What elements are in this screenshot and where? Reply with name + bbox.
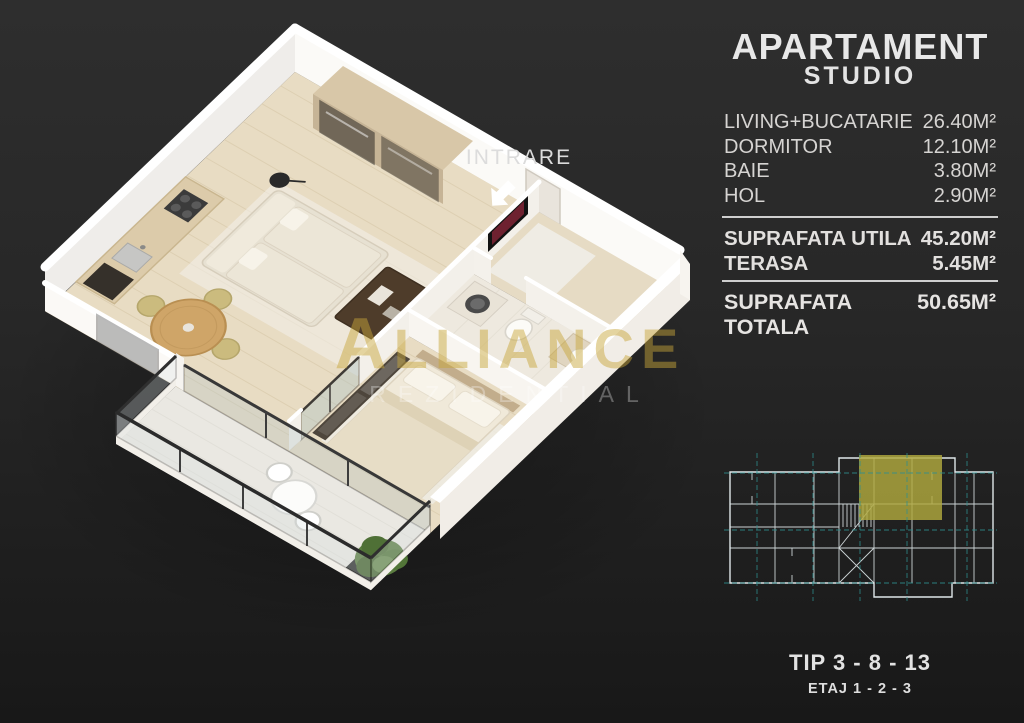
total-value: 50.65M² [917,290,996,340]
room-area-row: DORMITOR 12.10M² [724,135,996,160]
summary-label: TERASA [724,251,808,276]
room-value: 12.10M² [923,135,996,160]
room-value: 2.90M² [934,184,996,209]
summary-value: 45.20M² [921,226,996,251]
floor-location-blueprint [722,452,999,602]
unit-type-block: TIP 3 - 8 - 13 ETAJ 1 - 2 - 3 [722,650,998,697]
room-label: BAIE [724,159,770,184]
panel-divider [722,280,998,282]
room-label: DORMITOR [724,135,833,160]
summary-value: 5.45M² [932,251,996,276]
room-area-row: HOL 2.90M² [724,184,996,209]
room-area-row: LIVING+BUCATARIE 26.40M² [724,110,996,135]
total-label: SUPRAFATA TOTALA [724,290,917,340]
entrance-arrow-icon [488,176,522,210]
summary-label: SUPRAFATA UTILA [724,226,912,251]
total-row: SUPRAFATA TOTALA 50.65M² [724,290,996,340]
unit-floor-label: ETAJ 1 - 2 - 3 [722,681,998,697]
entrance-label: INTRARE [452,146,586,170]
summary-row: TERASA 5.45M² [724,251,996,276]
room-label: HOL [724,184,765,209]
room-value: 26.40M² [923,110,996,135]
highlighted-unit [859,455,942,520]
floorplan-3d [0,0,710,723]
unit-type-label: TIP 3 - 8 - 13 [722,650,998,676]
apartment-brochure-page: INTRARE ALLIANCE REZIDENTIAL APARTAMENT … [0,0,1024,723]
summary-list: SUPRAFATA UTILA 45.20M² TERASA 5.45M² [724,226,996,276]
room-label: LIVING+BUCATARIE [724,110,913,135]
room-value: 3.80M² [934,159,996,184]
room-area-row: BAIE 3.80M² [724,159,996,184]
room-area-list: LIVING+BUCATARIE 26.40M² DORMITOR 12.10M… [724,110,996,208]
apartment-subtitle: STUDIO [722,62,998,91]
summary-row: SUPRAFATA UTILA 45.20M² [724,226,996,251]
panel-divider [722,216,998,218]
